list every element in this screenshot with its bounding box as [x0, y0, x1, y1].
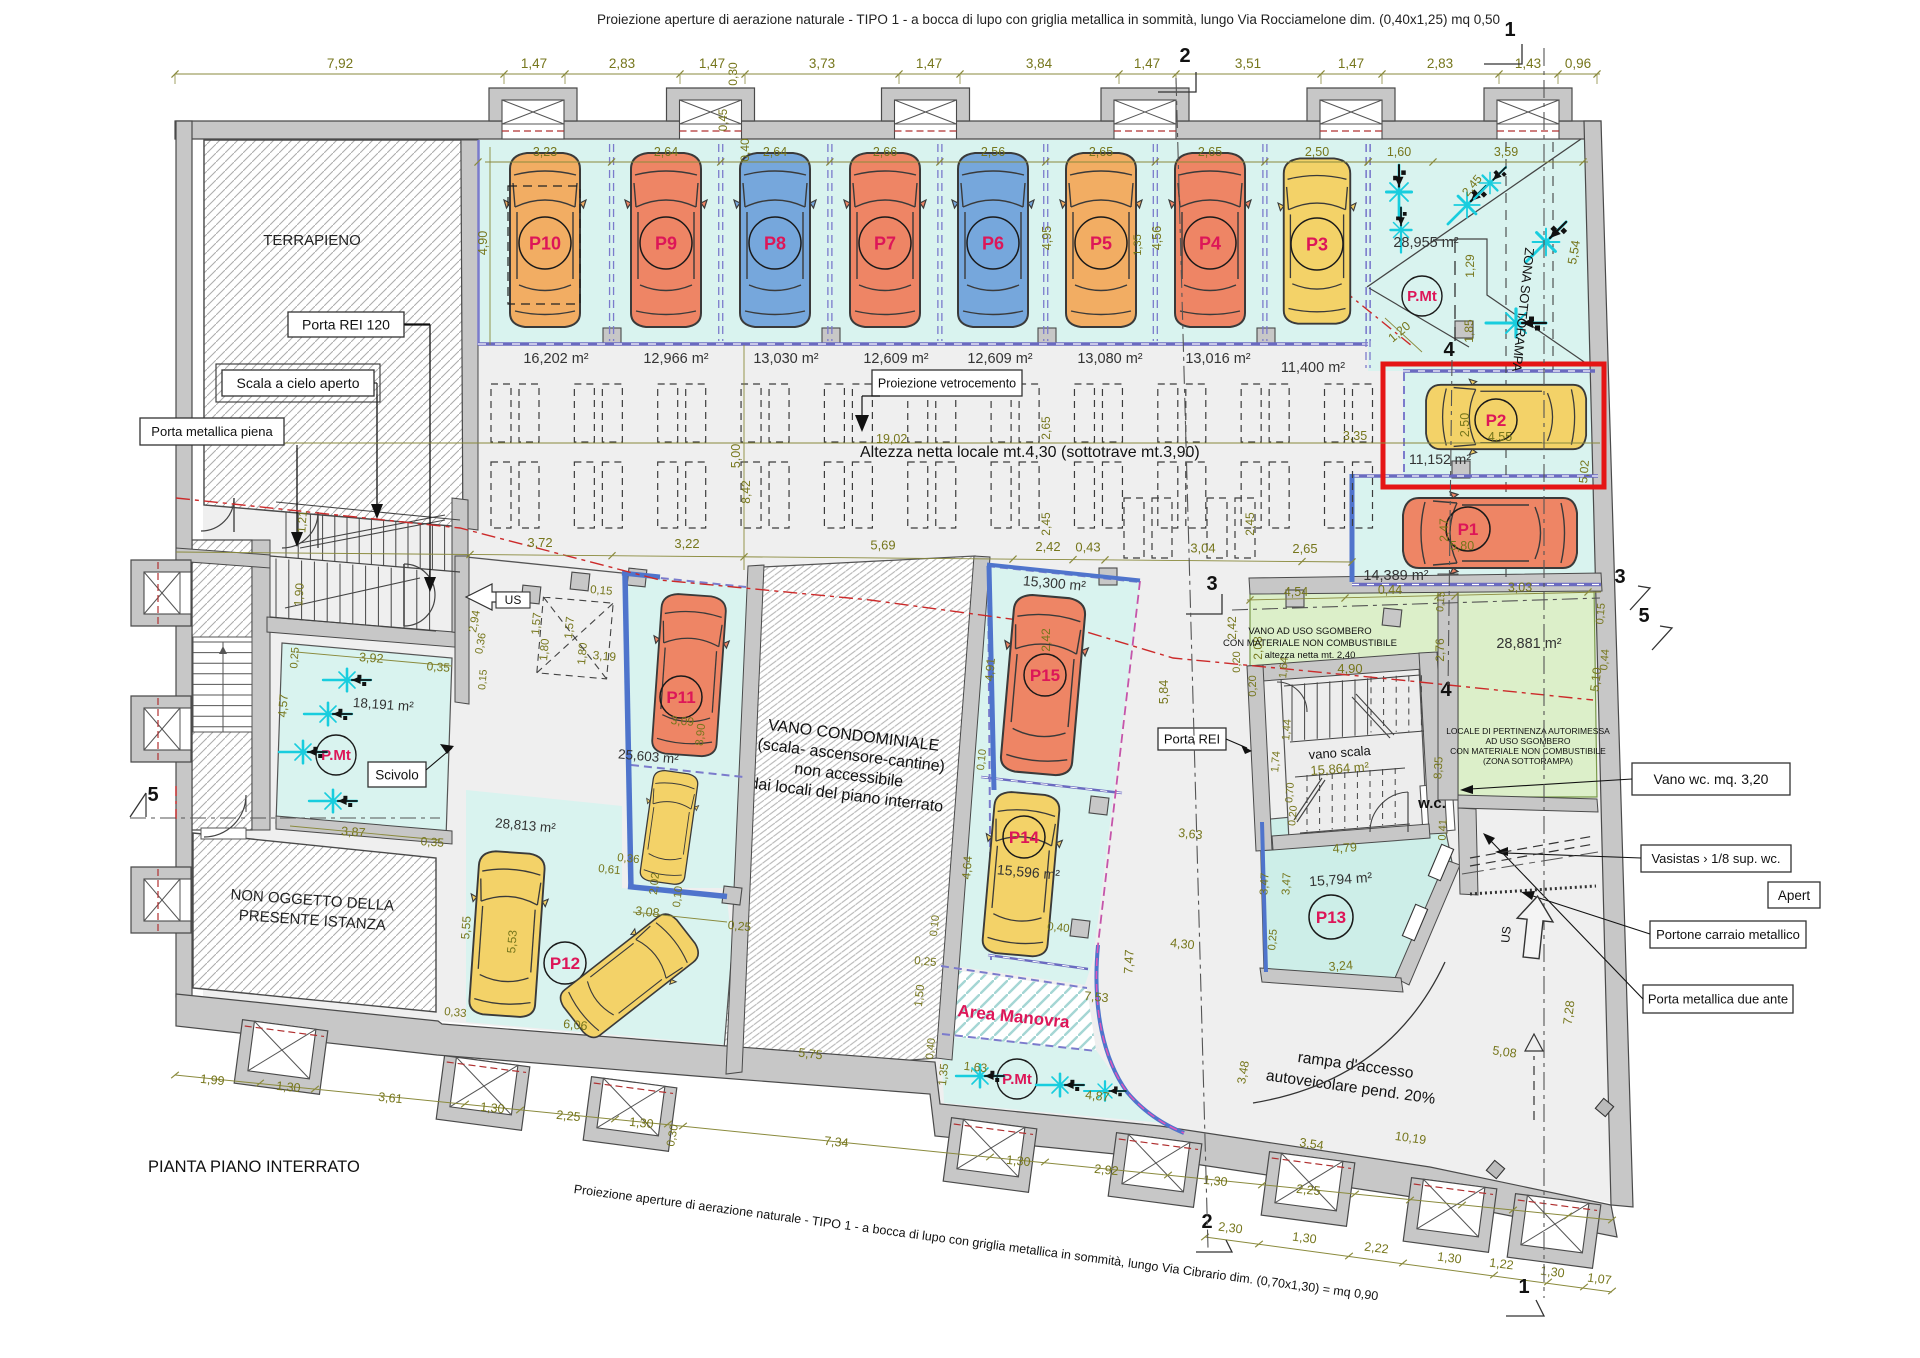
svg-text:1,50: 1,50 — [913, 984, 927, 1008]
svg-text:28,881 m²: 28,881 m² — [1496, 636, 1561, 652]
svg-text:1,35: 1,35 — [1132, 234, 1144, 255]
svg-text:2,42: 2,42 — [1225, 616, 1239, 640]
svg-text:P11: P11 — [666, 688, 695, 707]
svg-text:P1: P1 — [1458, 520, 1479, 539]
svg-text:0,40: 0,40 — [1047, 921, 1071, 935]
svg-text:1: 1 — [1518, 1276, 1529, 1298]
svg-text:3,84: 3,84 — [1026, 56, 1053, 71]
svg-text:2,83: 2,83 — [1427, 56, 1453, 71]
svg-text:2,83: 2,83 — [609, 56, 635, 71]
svg-text:P5: P5 — [1090, 233, 1112, 253]
svg-text:CON MATERIALE NON COMBUSTIBILE: CON MATERIALE NON COMBUSTIBILE — [1223, 638, 1397, 649]
svg-text:4,54: 4,54 — [1284, 585, 1308, 599]
svg-text:1,30: 1,30 — [1540, 1264, 1566, 1281]
svg-text:4,90: 4,90 — [476, 231, 490, 255]
svg-text:Proiezione vetrocemento: Proiezione vetrocemento — [878, 377, 1016, 391]
svg-text:8,90: 8,90 — [694, 723, 708, 747]
svg-text:4: 4 — [1440, 679, 1452, 701]
svg-text:4,87: 4,87 — [1085, 1088, 1111, 1104]
svg-text:4,95: 4,95 — [1040, 226, 1054, 250]
svg-text:0,10: 0,10 — [671, 885, 685, 908]
svg-text:3,08: 3,08 — [635, 904, 661, 920]
svg-text:4,64: 4,64 — [959, 855, 975, 880]
svg-text:13,030 m²: 13,030 m² — [753, 351, 818, 367]
svg-text:0,36: 0,36 — [617, 852, 641, 866]
svg-text:4,30: 4,30 — [1170, 936, 1196, 952]
svg-text:CON MATERIALE NON COMBUSTIBILE: CON MATERIALE NON COMBUSTIBILE — [1450, 746, 1606, 756]
svg-text:1,57: 1,57 — [563, 616, 577, 639]
svg-text:11,400 m²: 11,400 m² — [1281, 360, 1345, 376]
svg-text:TERRAPIENO: TERRAPIENO — [263, 232, 361, 249]
svg-text:3,47: 3,47 — [1280, 872, 1293, 895]
svg-text:0,45: 0,45 — [718, 109, 730, 131]
svg-text:0,25: 0,25 — [288, 647, 301, 669]
svg-text:5,55: 5,55 — [458, 915, 474, 940]
svg-text:12,609 m²: 12,609 m² — [967, 351, 1032, 367]
svg-text:2,50: 2,50 — [1305, 145, 1329, 159]
svg-text:Apert: Apert — [1778, 888, 1811, 903]
svg-text:0,15: 0,15 — [590, 584, 613, 598]
svg-text:1,47: 1,47 — [916, 56, 942, 71]
svg-text:P9: P9 — [655, 233, 677, 253]
svg-text:P2: P2 — [1486, 411, 1507, 430]
svg-text:0,44: 0,44 — [1378, 583, 1402, 597]
svg-text:US: US — [505, 593, 522, 607]
svg-text:2,02: 2,02 — [648, 872, 662, 896]
svg-text:3,03: 3,03 — [1508, 581, 1532, 595]
svg-text:1,44: 1,44 — [1280, 719, 1294, 741]
svg-text:1,35: 1,35 — [937, 1063, 951, 1087]
svg-text:P13: P13 — [1316, 908, 1346, 927]
svg-text:1,47: 1,47 — [1338, 56, 1364, 71]
svg-text:1,21: 1,21 — [296, 510, 310, 533]
svg-text:P10: P10 — [529, 233, 561, 253]
svg-text:2,30: 2,30 — [1218, 1220, 1244, 1237]
svg-text:Porta REI 120: Porta REI 120 — [302, 317, 390, 333]
svg-text:1,80: 1,80 — [538, 638, 552, 661]
svg-text:5,10: 5,10 — [1588, 667, 1605, 693]
svg-text:28,955 m²: 28,955 m² — [1393, 235, 1458, 251]
svg-text:Scivolo: Scivolo — [375, 767, 419, 782]
svg-text:1,47: 1,47 — [521, 56, 547, 71]
svg-text:3,23: 3,23 — [533, 145, 557, 159]
svg-text:7,34: 7,34 — [824, 1134, 850, 1150]
svg-text:1,29: 1,29 — [1463, 254, 1477, 278]
svg-text:2,65: 2,65 — [1039, 416, 1053, 440]
svg-text:0,70: 0,70 — [1283, 782, 1297, 804]
svg-text:14,389 m²: 14,389 m² — [1363, 568, 1428, 584]
svg-text:1,22: 1,22 — [1489, 1256, 1515, 1273]
svg-text:3,24: 3,24 — [1328, 958, 1353, 974]
svg-text:w.c.: w.c. — [1417, 795, 1446, 812]
svg-text:13,016 m²: 13,016 m² — [1185, 351, 1250, 367]
svg-text:0,20: 0,20 — [1231, 651, 1243, 672]
svg-text:11,152 m²: 11,152 m² — [1409, 451, 1471, 467]
svg-text:P3: P3 — [1306, 234, 1328, 254]
svg-text:1,30: 1,30 — [1006, 1153, 1032, 1169]
svg-text:1,47: 1,47 — [699, 56, 725, 71]
svg-text:0,33: 0,33 — [444, 1006, 468, 1020]
svg-text:P.Mt: P.Mt — [1407, 288, 1437, 305]
svg-text:3,09: 3,09 — [670, 713, 695, 729]
svg-text:5,80: 5,80 — [1450, 539, 1474, 553]
svg-text:2,64: 2,64 — [654, 145, 678, 159]
svg-text:5: 5 — [147, 784, 158, 806]
svg-text:2,45: 2,45 — [1243, 512, 1257, 536]
svg-text:1,30: 1,30 — [276, 1079, 302, 1095]
svg-text:12,966 m²: 12,966 m² — [643, 351, 708, 367]
svg-text:PIANTA PIANO INTERRATO: PIANTA PIANO INTERRATO — [148, 1158, 360, 1176]
svg-text:8,42: 8,42 — [739, 480, 753, 504]
svg-text:2,92: 2,92 — [1094, 1162, 1120, 1178]
svg-text:3: 3 — [1206, 573, 1217, 595]
svg-text:1,07: 1,07 — [1587, 1271, 1613, 1288]
svg-text:Proiezione aperture di aerazio: Proiezione aperture di aerazione natural… — [597, 12, 1500, 27]
svg-text:8,35: 8,35 — [1432, 756, 1445, 779]
svg-text:Vano wc. mq. 3,20: Vano wc. mq. 3,20 — [1654, 771, 1769, 787]
svg-text:3,22: 3,22 — [674, 536, 699, 551]
svg-text:P.Mt: P.Mt — [1002, 1071, 1032, 1088]
svg-text:Porta metallica piena: Porta metallica piena — [151, 424, 273, 439]
svg-text:P4: P4 — [1199, 233, 1221, 253]
svg-text:0,41: 0,41 — [1436, 819, 1449, 841]
svg-text:3,35: 3,35 — [1343, 429, 1367, 443]
svg-text:1,30: 1,30 — [1437, 1250, 1463, 1267]
svg-text:0,20: 0,20 — [1247, 675, 1259, 696]
svg-text:4,79: 4,79 — [1332, 840, 1357, 856]
svg-text:P15: P15 — [1030, 666, 1060, 685]
svg-text:4: 4 — [1443, 339, 1455, 361]
svg-text:4,91: 4,91 — [982, 657, 998, 682]
svg-text:AD USO SGOMBERO: AD USO SGOMBERO — [1485, 736, 1570, 746]
svg-text:(ZONA SOTTORAMPA): (ZONA SOTTORAMPA) — [1483, 756, 1573, 766]
svg-text:P14: P14 — [1009, 828, 1040, 847]
svg-text:3,63: 3,63 — [1178, 826, 1204, 842]
svg-text:Scala a cielo aperto: Scala a cielo aperto — [237, 375, 360, 391]
svg-text:4,56: 4,56 — [1150, 226, 1164, 250]
svg-text:5,02: 5,02 — [1576, 459, 1592, 484]
svg-text:7,28: 7,28 — [1561, 1000, 1578, 1026]
svg-text:0,96: 0,96 — [1565, 56, 1591, 71]
svg-text:2,65: 2,65 — [1089, 145, 1113, 159]
svg-text:2,50: 2,50 — [1458, 413, 1472, 437]
svg-text:1,30: 1,30 — [480, 1100, 506, 1116]
svg-text:1,99: 1,99 — [200, 1072, 226, 1088]
svg-text:0,35: 0,35 — [426, 659, 451, 675]
svg-text:US: US — [1498, 926, 1514, 944]
svg-text:2,42: 2,42 — [1035, 539, 1060, 554]
svg-text:3,04: 3,04 — [1190, 540, 1215, 555]
svg-text:12,609 m²: 12,609 m² — [863, 351, 928, 367]
svg-text:1,63: 1,63 — [963, 1059, 988, 1075]
svg-text:2,65: 2,65 — [1198, 145, 1222, 159]
svg-text:P12: P12 — [550, 954, 580, 973]
svg-text:1,30: 1,30 — [629, 1115, 655, 1131]
svg-text:P7: P7 — [874, 233, 896, 253]
svg-text:7,92: 7,92 — [327, 56, 353, 71]
svg-text:2,76: 2,76 — [1433, 638, 1447, 662]
svg-text:2,66: 2,66 — [873, 145, 897, 159]
svg-text:0,30: 0,30 — [726, 62, 740, 86]
svg-text:5,69: 5,69 — [870, 538, 895, 553]
svg-text:2,56: 2,56 — [981, 145, 1005, 159]
svg-text:5,75: 5,75 — [798, 1046, 824, 1063]
svg-text:1,57: 1,57 — [530, 612, 544, 635]
svg-text:3,19: 3,19 — [592, 648, 617, 664]
svg-text:P6: P6 — [982, 233, 1004, 253]
svg-text:VANO AD USO SGOMBERO: VANO AD USO SGOMBERO — [1248, 626, 1371, 637]
svg-text:1,60: 1,60 — [1387, 145, 1411, 159]
svg-text:2,25: 2,25 — [1296, 1182, 1322, 1198]
svg-text:4,55: 4,55 — [1488, 430, 1512, 444]
svg-text:6,06: 6,06 — [563, 1017, 589, 1033]
svg-text:5,00: 5,00 — [729, 444, 743, 468]
svg-text:Porta metallica due ante: Porta metallica due ante — [1648, 992, 1788, 1007]
svg-text:1,85: 1,85 — [1462, 319, 1476, 343]
svg-text:3,61: 3,61 — [378, 1090, 404, 1106]
svg-text:3,73: 3,73 — [809, 56, 835, 71]
svg-text:1,30: 1,30 — [1292, 1230, 1318, 1247]
svg-text:0,25: 0,25 — [1266, 929, 1280, 951]
svg-text:0,61: 0,61 — [598, 863, 622, 877]
svg-text:0,10: 0,10 — [928, 914, 942, 937]
svg-text:2: 2 — [1179, 45, 1190, 67]
svg-text:P.Mt: P.Mt — [321, 747, 351, 764]
svg-text:16,202 m²: 16,202 m² — [523, 351, 588, 367]
svg-text:0,15: 0,15 — [476, 669, 490, 691]
svg-text:2,65: 2,65 — [1292, 541, 1317, 556]
svg-text:2,45: 2,45 — [1039, 512, 1053, 536]
svg-text:3,47: 3,47 — [1258, 872, 1271, 895]
svg-text:1,80: 1,80 — [576, 642, 590, 665]
svg-text:3,51: 3,51 — [1235, 56, 1261, 71]
svg-text:0,15: 0,15 — [1594, 603, 1608, 625]
svg-text:4,90: 4,90 — [1337, 661, 1362, 676]
svg-text:1,74: 1,74 — [1269, 751, 1283, 773]
svg-text:0,20: 0,20 — [1286, 805, 1300, 827]
svg-text:2,22: 2,22 — [1364, 1240, 1390, 1257]
svg-text:Porta REI: Porta REI — [1164, 732, 1220, 747]
svg-text:2,64: 2,64 — [763, 145, 787, 159]
svg-text:1,90: 1,90 — [291, 582, 307, 607]
svg-text:4,57: 4,57 — [275, 693, 291, 718]
svg-text:P8: P8 — [764, 233, 786, 253]
svg-text:0,44: 0,44 — [1598, 649, 1612, 671]
svg-text:LOCALE DI PERTINENZA AUTORIMES: LOCALE DI PERTINENZA AUTORIMESSA — [1446, 726, 1610, 736]
svg-text:7,47: 7,47 — [1121, 949, 1136, 974]
svg-text:0,25: 0,25 — [914, 955, 938, 969]
svg-text:0,15: 0,15 — [1434, 591, 1448, 613]
svg-text:0,10: 0,10 — [975, 748, 989, 771]
svg-text:0,35: 0,35 — [420, 834, 445, 850]
svg-text:3,59: 3,59 — [1494, 145, 1518, 159]
svg-text:0,40: 0,40 — [738, 138, 752, 162]
svg-text:3: 3 — [1614, 566, 1625, 588]
svg-text:altezza netta mt. 2,40: altezza netta mt. 2,40 — [1265, 650, 1356, 661]
svg-text:5,53: 5,53 — [504, 929, 520, 954]
svg-text:Portone carraio metallico: Portone carraio metallico — [1656, 927, 1800, 942]
svg-text:13,080 m²: 13,080 m² — [1077, 351, 1142, 367]
svg-text:0,25: 0,25 — [727, 918, 752, 934]
svg-text:Altezza netta locale mt.4,30 (: Altezza netta locale mt.4,30 (sottotrave… — [860, 444, 1200, 461]
svg-text:1,47: 1,47 — [1134, 56, 1160, 71]
svg-text:2,25: 2,25 — [556, 1108, 582, 1124]
svg-text:0,43: 0,43 — [1075, 539, 1100, 554]
svg-text:3,72: 3,72 — [527, 535, 552, 550]
svg-text:Vasistas › 1/8 sup. wc.: Vasistas › 1/8 sup. wc. — [1651, 851, 1780, 866]
svg-text:7,53: 7,53 — [1084, 989, 1110, 1005]
svg-text:1: 1 — [1504, 19, 1515, 41]
svg-text:5: 5 — [1638, 605, 1649, 627]
svg-text:2,42: 2,42 — [1039, 628, 1053, 652]
svg-text:0,40: 0,40 — [924, 1037, 938, 1060]
svg-text:5,84: 5,84 — [1157, 680, 1171, 704]
